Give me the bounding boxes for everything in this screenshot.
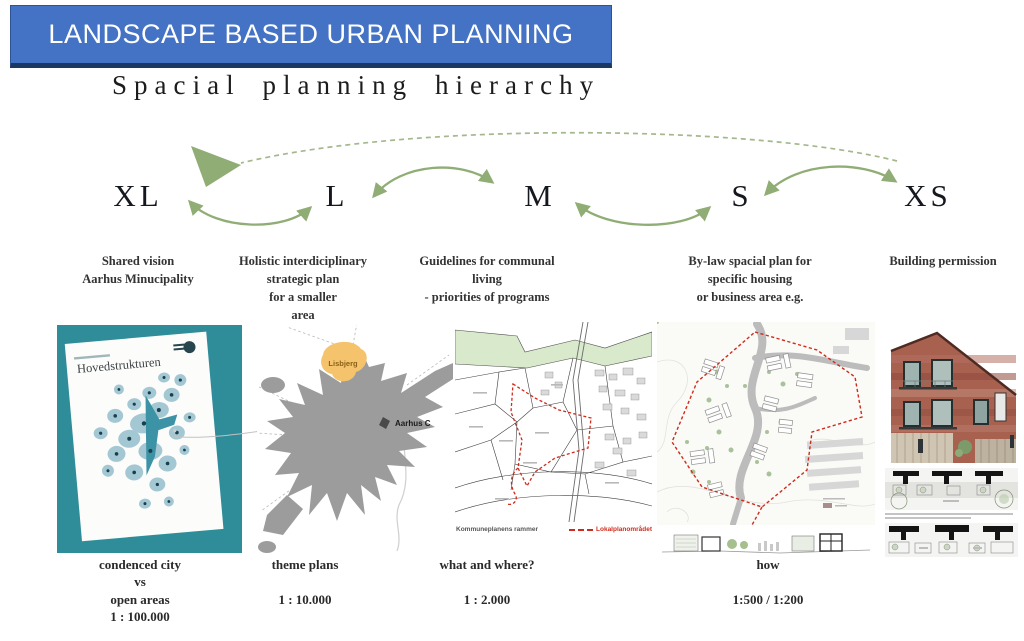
title-banner: LANDSCAPE BASED URBAN PLANNING [10, 5, 612, 68]
xs-site-plan-strip-2 [885, 523, 1018, 557]
xs-building-elevation-image [885, 325, 1018, 463]
arrow-xl-l-icon [190, 202, 310, 225]
description-s: By-law spacial plan for specific housing… [650, 252, 850, 306]
description-l: Holistic interdiciplinary strategic plan… [203, 252, 403, 325]
feedback-dashed-arc [241, 133, 897, 163]
xs-site-plan-strip-1 [885, 468, 1018, 510]
l-theme-plan-image: Lisbjerg Aarhus C [257, 325, 453, 553]
slide: LANDSCAPE BASED URBAN PLANNING Spacial p… [0, 0, 1024, 641]
feedback-arrowhead-icon [191, 146, 241, 187]
caption-s: how 1:500 / 1:200 [668, 556, 868, 608]
red-dash-legend-icon [569, 529, 593, 531]
m-map-legend-label: Lokalplanområdet [596, 526, 652, 533]
arrow-m-s-icon [577, 204, 709, 225]
banner-title: LANDSCAPE BASED URBAN PLANNING [48, 19, 573, 50]
arrow-s-xs-icon [766, 167, 895, 194]
zoom-leader-line [170, 426, 270, 442]
m-map-legend: Lokalplanområdet [569, 526, 652, 533]
description-xs: Building permission [845, 252, 1024, 270]
description-m: Guidelines for communal living - priorit… [387, 252, 587, 306]
page-title: Spacial planning hierarchy [112, 70, 632, 101]
arrow-l-m-icon [374, 168, 492, 196]
aarhus-c-label: Aarhus C [395, 419, 431, 428]
s-site-plan-image [657, 322, 875, 525]
m-cadastral-map-image [455, 322, 652, 522]
lisbjerg-label: Lisbjerg [328, 359, 358, 368]
caption-l: theme plans 1 : 10.000 [205, 556, 405, 608]
caption-m: what and where? 1 : 2.000 [387, 556, 587, 608]
s-section-drawing [660, 529, 872, 557]
hierarchy-arrows [0, 118, 1024, 250]
m-map-caption-row: Kommuneplanens rammer Lokalplanområdet [456, 526, 652, 533]
fine-print-line [885, 517, 971, 519]
m-map-caption: Kommuneplanens rammer [456, 526, 538, 533]
fine-print-line [885, 513, 1013, 515]
